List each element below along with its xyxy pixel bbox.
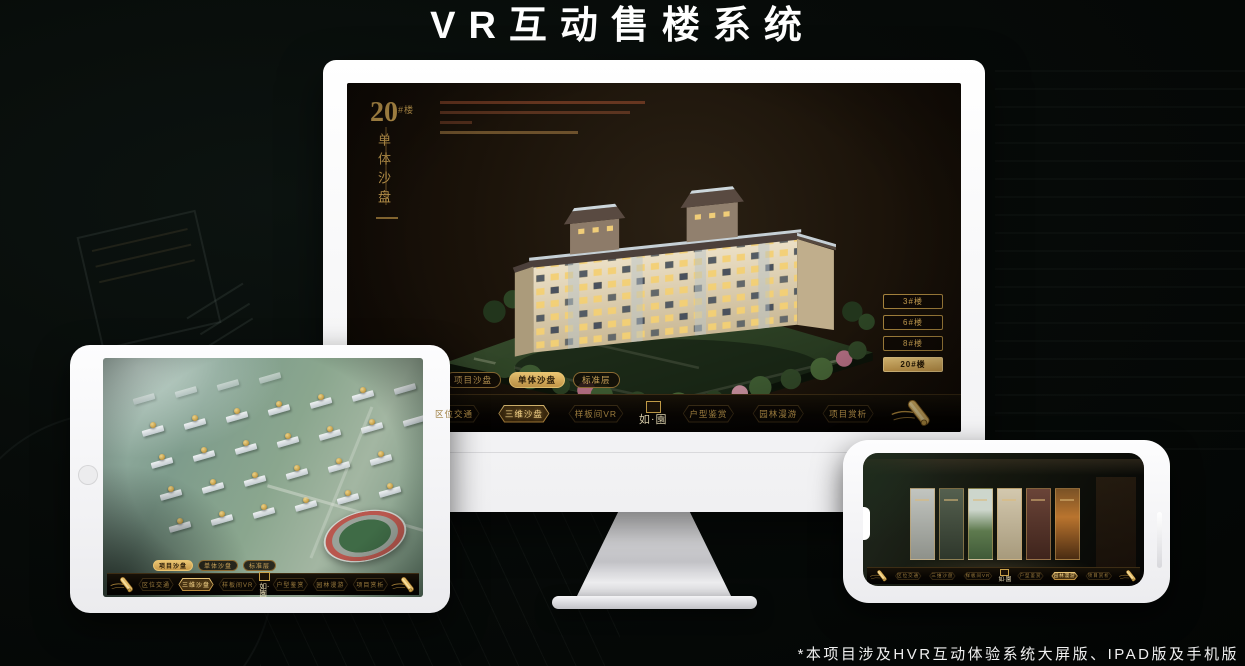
nav-item-label: 区位交通	[897, 573, 919, 578]
nav-item-样板间VR[interactable]: 样板间VR	[962, 572, 995, 580]
panel-caption-decor	[944, 499, 958, 501]
nav-item-三维沙盘[interactable]: 三维沙盘	[495, 405, 553, 423]
nav-item-label: 项目赏析	[829, 409, 867, 419]
nav-item-label: 三维沙盘	[505, 409, 543, 419]
tab-项目沙盘[interactable]: 项目沙盘	[153, 560, 193, 571]
scroll-icon[interactable]	[1118, 570, 1138, 582]
floor-button-8#楼[interactable]: 8#楼	[883, 336, 943, 351]
gallery-panel[interactable]	[968, 488, 993, 560]
nav-item-label: 项目赏析	[356, 583, 384, 589]
tablet-nav-bar: 区位交通三维沙盘样板间VR如·園户型鉴赏园林漫游项目赏析	[107, 573, 419, 595]
tab-标准层[interactable]: 标准层	[243, 560, 276, 571]
phone-nav-bar: 区位交通三维沙盘样板间VR如·園户型鉴赏园林漫游项目赏析	[867, 567, 1140, 584]
scroll-icon[interactable]	[869, 570, 889, 582]
nav-item-label: 园林漫游	[759, 409, 797, 419]
nav-item-户型鉴赏[interactable]: 户型鉴赏	[679, 405, 737, 423]
gallery-panel[interactable]	[1055, 488, 1080, 560]
gallery-panel[interactable]	[910, 488, 935, 560]
nav-item-园林漫游[interactable]: 园林漫游	[749, 405, 807, 423]
tab-单体沙盘[interactable]: 单体沙盘	[509, 372, 565, 388]
nav-item-label: 三维沙盘	[182, 583, 210, 589]
nav-item-区位交通[interactable]: 区位交通	[136, 578, 176, 591]
screen-subtitle: 单体沙盘	[374, 133, 393, 209]
interior-door-decor	[1096, 477, 1136, 567]
phone-side-button	[1157, 512, 1162, 568]
footnote-text: *本项目涉及HVR互动体验系统大屏版、IPAD版及手机版	[798, 643, 1239, 664]
scroll-icon[interactable]	[889, 400, 935, 427]
brand-seal-icon	[1000, 569, 1009, 576]
floor-button-3#楼[interactable]: 3#楼	[883, 294, 943, 309]
building-number: 20	[370, 97, 398, 128]
nav-item-区位交通[interactable]: 区位交通	[893, 572, 923, 580]
nav-item-label: 项目赏析	[1088, 573, 1110, 578]
floor-button-20#楼[interactable]: 20#楼	[883, 357, 943, 372]
brand-logo: 如·園	[259, 572, 270, 598]
nav-item-户型鉴赏[interactable]: 户型鉴赏	[1015, 572, 1045, 580]
scroll-icon[interactable]	[390, 577, 417, 593]
nav-item-label: 样板间VR	[966, 573, 991, 578]
nav-item-label: 户型鉴赏	[276, 583, 304, 589]
panel-caption-decor	[1031, 499, 1045, 501]
nav-item-项目赏析[interactable]: 项目赏析	[819, 405, 877, 423]
brand-logo: 如·園	[639, 401, 668, 426]
nav-item-园林漫游[interactable]: 园林漫游	[310, 578, 350, 591]
scroll-icon[interactable]	[109, 577, 136, 593]
brand-logo: 如·園	[998, 569, 1011, 584]
bg-plaque-decor	[77, 210, 222, 350]
bg-collage-texture	[995, 60, 1245, 450]
building-number-suffix: #楼	[398, 105, 414, 115]
monitor-tab-group: 项目沙盘单体沙盘标准层	[445, 372, 620, 388]
nav-item-label: 户型鉴赏	[1019, 573, 1041, 578]
tab-标准层[interactable]: 标准层	[573, 372, 620, 388]
nav-item-label: 三维沙盘	[931, 573, 953, 578]
brand-seal-icon	[646, 401, 661, 413]
phone-device: 区位交通三维沙盘样板间VR如·園户型鉴赏园林漫游项目赏析	[843, 440, 1170, 603]
nav-item-项目赏析[interactable]: 项目赏析	[350, 578, 390, 591]
poster-canvas: VR互动售楼系统 20#楼 单体沙盘	[0, 0, 1245, 666]
nav-item-label: 户型鉴赏	[689, 409, 727, 419]
floor-button-6#楼[interactable]: 6#楼	[883, 315, 943, 330]
nav-item-label: 样板间VR	[222, 583, 253, 589]
monitor-base	[552, 596, 757, 609]
nav-item-样板间VR[interactable]: 样板间VR	[216, 578, 259, 591]
tablet-device: 项目沙盘单体沙盘标准层 区位交通三维沙盘样板间VR如·園户型鉴赏园林漫游项目赏析	[70, 345, 450, 613]
nav-item-label: 区位交通	[435, 409, 473, 419]
nav-item-项目赏析[interactable]: 项目赏析	[1084, 572, 1114, 580]
floor-button-group: 3#楼6#楼8#楼20#楼	[883, 294, 943, 378]
nav-item-户型鉴赏[interactable]: 户型鉴赏	[270, 578, 310, 591]
tablet-screen: 项目沙盘单体沙盘标准层 区位交通三维沙盘样板间VR如·園户型鉴赏园林漫游项目赏析	[103, 358, 423, 597]
gallery-panel[interactable]	[997, 488, 1022, 560]
tablet-home-button[interactable]	[78, 465, 98, 485]
panel-caption-decor	[1060, 499, 1074, 501]
gallery-panel-strip	[910, 488, 1080, 560]
gallery-panel[interactable]	[1026, 488, 1051, 560]
nav-item-label: 区位交通	[142, 583, 170, 589]
title-english-decor	[385, 127, 387, 205]
tablet-tab-group: 项目沙盘单体沙盘标准层	[153, 560, 276, 571]
tab-单体沙盘[interactable]: 单体沙盘	[198, 560, 238, 571]
brand-logo-text: 如·園	[259, 583, 270, 598]
brand-logo-text: 如·園	[639, 415, 668, 426]
title-rule-decor	[376, 217, 398, 219]
panel-caption-decor	[915, 499, 929, 501]
tab-项目沙盘[interactable]: 项目沙盘	[445, 372, 501, 388]
panel-caption-decor	[1002, 499, 1016, 501]
nav-item-园林漫游[interactable]: 园林漫游	[1050, 572, 1080, 580]
building-title-block: 20#楼 单体沙盘	[370, 97, 414, 219]
gallery-panel[interactable]	[939, 488, 964, 560]
brand-logo-text: 如·園	[998, 578, 1011, 584]
page-title: VR互动售楼系统	[0, 0, 1245, 52]
panel-caption-decor	[973, 499, 987, 501]
nav-item-三维沙盘[interactable]: 三维沙盘	[927, 572, 957, 580]
nav-item-样板间VR[interactable]: 样板间VR	[565, 405, 627, 423]
brand-seal-icon	[259, 572, 270, 581]
phone-notch	[863, 507, 870, 540]
nav-item-label: 园林漫游	[1054, 573, 1076, 578]
phone-screen: 区位交通三维沙盘样板间VR如·園户型鉴赏园林漫游项目赏析	[863, 453, 1144, 586]
description-text-lines	[440, 101, 645, 141]
nav-item-label: 园林漫游	[316, 583, 344, 589]
nav-item-三维沙盘[interactable]: 三维沙盘	[176, 578, 216, 591]
nav-item-label: 样板间VR	[575, 409, 617, 419]
